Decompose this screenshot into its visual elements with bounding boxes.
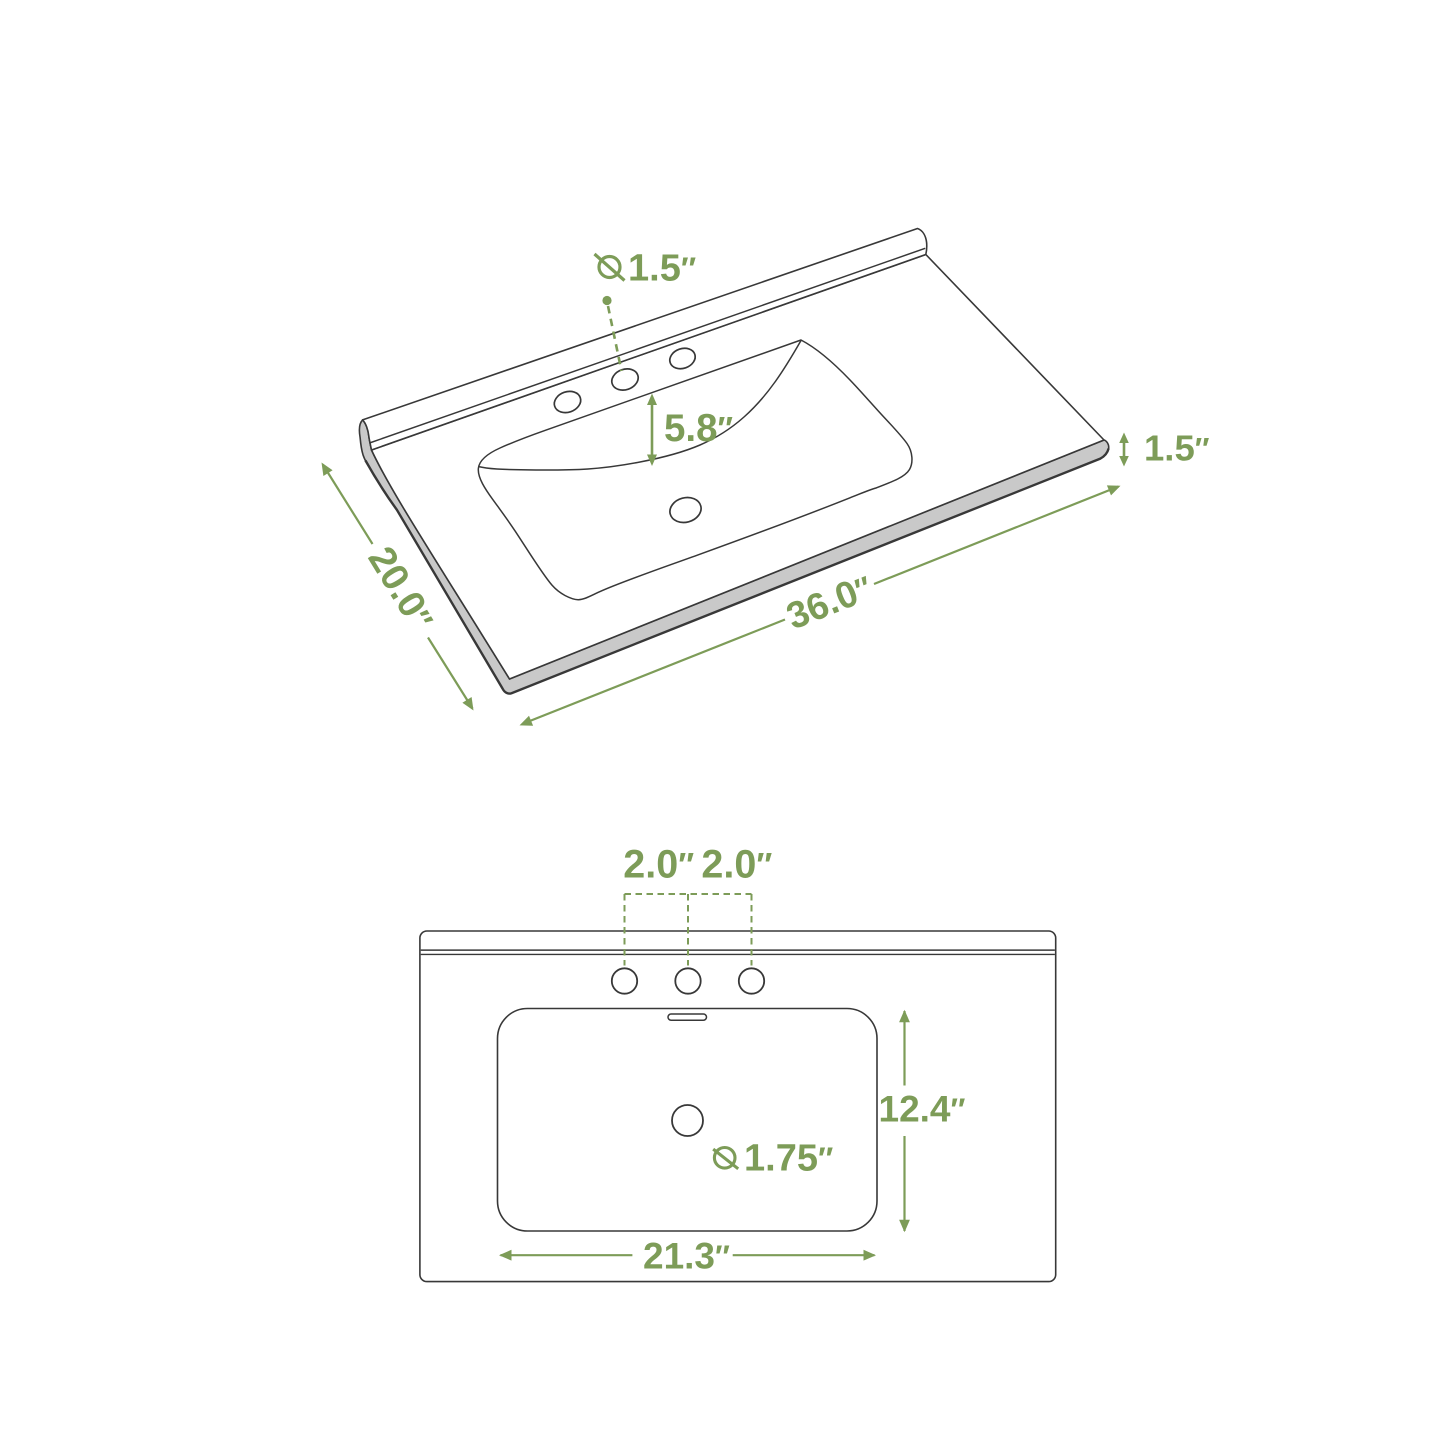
svg-text:2.0″: 2.0″ [623, 843, 694, 887]
svg-text:1.5″: 1.5″ [1144, 427, 1210, 468]
svg-text:1.75″: 1.75″ [744, 1137, 833, 1179]
svg-text:1.5″: 1.5″ [628, 248, 696, 290]
svg-text:12.4″: 12.4″ [879, 1089, 966, 1130]
svg-text:5.8″: 5.8″ [664, 407, 733, 450]
svg-text:21.3″: 21.3″ [643, 1235, 730, 1276]
svg-text:2.0″: 2.0″ [701, 843, 772, 887]
